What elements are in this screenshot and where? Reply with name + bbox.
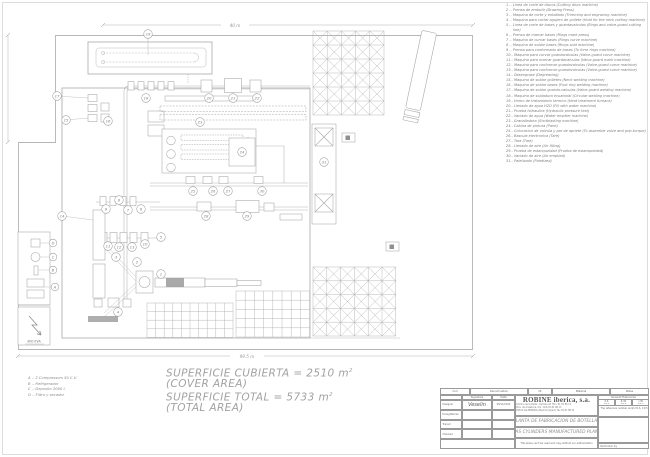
svg-text:1: 1: [160, 271, 162, 276]
legend-item: 11.- Maquina para marcar guardavalvulas …: [506, 58, 648, 62]
covered-area-en: (COVER AREA): [166, 379, 353, 390]
signature-role-label: Draughtsman: [440, 410, 462, 420]
station-marker: 31: [320, 158, 329, 167]
station-marker: 19: [144, 30, 153, 39]
station-marker: 6: [137, 205, 146, 214]
svg-text:12: 12: [117, 244, 122, 249]
svg-text:22: 22: [255, 95, 260, 100]
revision-header-cell: Material: [552, 388, 610, 395]
signature-value: [462, 410, 492, 420]
station-marker: 20: [205, 94, 214, 103]
legend-item: 18.- Maquina de soldadura ecuatorial (Ci…: [506, 94, 648, 98]
revision-header-cell: Notes: [610, 388, 649, 395]
legend-item: 6 .- Prensa de marcar bases (Rings mark …: [506, 33, 648, 37]
station-marker: 1: [157, 270, 166, 279]
signature-date: 28/11/2012: [492, 400, 515, 410]
legend-item: 7 .- Maquina de curvar bases (Rings curv…: [506, 38, 648, 42]
station-marker: 24: [238, 148, 247, 157]
svg-text:D: D: [52, 241, 55, 245]
storage-grid: [236, 291, 310, 337]
svg-text:26: 26: [211, 188, 216, 193]
equipment-letter-marker: C: [49, 253, 57, 261]
station-marker: 2: [133, 258, 142, 267]
total-area-es: SUPERFICIE TOTAL = 5733 m2: [166, 390, 353, 403]
total-area-en: (TOTAL AREA): [166, 403, 353, 414]
conveyor-lines: [96, 74, 310, 300]
area-summary: SUPERFICIE CUBIERTA = 2510 m2 (COVER ARE…: [166, 366, 353, 414]
svg-text:30: 30: [260, 188, 265, 193]
station-marker: 7: [124, 206, 133, 215]
legend-item: 16.- Maquina de soldar bases (Foot ring …: [506, 83, 648, 87]
signature-date: [492, 429, 515, 439]
station-marker: 26: [209, 187, 218, 196]
reminder-cell: Reminder by: [598, 443, 649, 449]
sign-empty-cell: [440, 439, 515, 449]
site-boundary: [19, 36, 473, 350]
covered-area-es: SUPERFICIE CUBIERTA = 2510 m2: [166, 366, 353, 379]
signature-value: [462, 429, 492, 439]
usage-note: This plane can't be used and copy withou…: [515, 438, 598, 449]
svg-text:18: 18: [144, 95, 149, 100]
signature-date: [492, 410, 515, 420]
legend-item: 2 .- Prensa de embutir (Drawing Press): [506, 8, 648, 12]
dimension-top-label: 40 m: [230, 23, 241, 28]
station-marker: 28: [202, 212, 211, 221]
station-marker: 17: [53, 92, 62, 101]
svg-text:A: A: [53, 285, 57, 289]
station-marker: 13: [128, 243, 137, 252]
drawing-title-en: GAS CYLINDERS MANUFACTURED PLANT: [515, 427, 598, 438]
compressor-room: [18, 232, 51, 345]
drawing-title-es: PLANTA DE FABRICACION DE BOTELLAS: [515, 416, 598, 427]
station-marker: 4: [114, 308, 123, 317]
legend-item: 19.- Horno de tratamiento termico (Heat …: [506, 99, 648, 103]
station-marker: 25: [189, 187, 198, 196]
svg-text:28: 28: [204, 213, 209, 218]
station-marker: 3: [112, 253, 121, 262]
legend-item: 8 .- Maquina de soldar bases (Rings sold…: [506, 43, 648, 47]
svg-text:24: 24: [240, 149, 245, 154]
svg-text:19: 19: [146, 31, 151, 36]
legend-item: 28.- Llenado de aire (Air filling): [506, 144, 648, 148]
station-marker: 5: [157, 233, 166, 242]
signature-value: [462, 420, 492, 430]
station-marker: 12: [115, 243, 124, 252]
tolerance-value-cell: ±0.5: [632, 403, 649, 406]
station-marker: 18: [142, 94, 151, 103]
equipment-letter-marker: B: [49, 266, 57, 274]
legend-item: 15.- Maquina de soldar golletes (Neck we…: [506, 78, 648, 82]
svg-text:16: 16: [106, 118, 111, 123]
machine-boxes: [88, 79, 274, 308]
transformer-label: 800 KVA: [27, 340, 40, 344]
signature-role-label: Traced: [440, 420, 462, 430]
title-block: Signature Date ROBINE iberica, s.a. Cami…: [440, 388, 649, 449]
signature-value: Veselin: [462, 400, 492, 410]
legend-item: 24.- Cabina de pintura (Paint): [506, 124, 648, 128]
legend-item: 1 .- Linea de corte de discos (Cutting d…: [506, 3, 648, 7]
svg-text:20: 20: [207, 95, 212, 100]
station-marker: 16: [104, 117, 113, 126]
legend-item: 29.- Prueba de estanqueidad (Prueba de e…: [506, 149, 648, 153]
legend-item: 9 .- Prensa para conformado de bases (To…: [506, 48, 648, 52]
station-marker: 23: [196, 118, 205, 127]
station-marker: 21: [229, 94, 238, 103]
station-marker: 22: [253, 94, 262, 103]
station-marker: 9: [102, 205, 111, 214]
signature-role-label: Designer: [440, 400, 462, 410]
legend-item: 4 .- Maquina para cortar agujero de goll…: [506, 18, 648, 22]
equipment-letter-marker: A: [51, 283, 59, 291]
legend-item: 26.- Bascula electronica (Tare): [506, 134, 648, 138]
truck-ramp: [403, 30, 437, 123]
legend-item: 3 .- Maquina de corte y entallado (Trimm…: [506, 13, 648, 17]
storage-rack-grids: [147, 31, 396, 337]
legend-item: 25.- Colocacion de valvula y par de apri…: [506, 129, 648, 133]
equipment-letter-marker: D: [49, 239, 57, 247]
legend-item: 21.- Prueba hidraulica (Hydraulic pressu…: [506, 109, 648, 113]
machine-legend: 1 .- Linea de corte de discos (Cutting d…: [506, 3, 648, 164]
svg-text:27: 27: [226, 188, 231, 193]
legend-item: 13.- Maquina para conformar guardavalvul…: [506, 68, 648, 72]
station-marker: 14: [58, 212, 67, 221]
svg-text:21: 21: [231, 95, 236, 100]
legend-item: 31.- Paletizado (Paletized): [506, 159, 648, 163]
storage-grid: [147, 303, 233, 337]
right-empty-cell: [598, 417, 649, 443]
station-marker: 29: [243, 212, 252, 221]
dimension-lines: [6, 23, 475, 358]
station-marker: 30: [258, 187, 267, 196]
legend-item: 27.- Tara (Tare): [506, 139, 648, 143]
legend-item: 22.- Vaciado de agua (Water emptier mach…: [506, 114, 648, 118]
station-marker: 8: [115, 196, 124, 205]
legend-item: 30.- Vaciado de aire (Air emptied): [506, 154, 648, 158]
svg-text:15: 15: [64, 117, 69, 122]
signature-role-label: Checked: [440, 429, 462, 439]
svg-text:13: 13: [130, 244, 135, 249]
revision-header-cell: Qt: [528, 388, 552, 395]
svg-text:31: 31: [322, 159, 327, 164]
utilities-legend: A .- 2 Compressors 50 C.V.B .- Refrigera…: [28, 376, 77, 398]
legend-item: 20.- Llenado de agua H2O (Fill with wate…: [506, 104, 648, 108]
dimension-bottom-label: 99.5 m: [240, 354, 255, 359]
signature-date: [492, 420, 515, 430]
svg-text:11: 11: [106, 243, 111, 248]
legend-item: 23.- Granalladora (Shotblasting machine): [506, 119, 648, 123]
svg-text:10: 10: [143, 241, 148, 246]
svg-text:25: 25: [191, 188, 196, 193]
station-marker: 10: [141, 240, 150, 249]
legend-item: 14.- Desengrase (Degreasing): [506, 73, 648, 77]
legend-item: 10.- Maquina para curvar guardavalvulas …: [506, 53, 648, 57]
legend-item: 17.- Maquina de soldar guarda-valvulas (…: [506, 88, 648, 92]
legend-item: 12.- Maquina para conformar guardavalvul…: [506, 63, 648, 67]
station-marker: 15: [62, 116, 71, 125]
equipment-letter-markers: DCBA: [49, 239, 59, 291]
utilities-legend-item: D .- Filtro y secador: [28, 393, 77, 399]
tolerance-value-cell: ±0.2: [615, 403, 632, 406]
revision-header-cell: Denomination: [470, 388, 528, 395]
revision-header-cell: Cod: [440, 388, 470, 395]
utilities-legend-item: A .- 2 Compressors 50 C.V.: [28, 376, 77, 382]
company-cell: ROBINE iberica, s.a. Camino de la Zarza …: [515, 395, 598, 416]
tolerances-note: The reference number and/or R.S. ±0.5: [598, 405, 649, 417]
svg-text:29: 29: [245, 213, 250, 218]
furnace-conveyor: [96, 39, 206, 68]
drawing-sheet: 800 KVA 40 m 99.5 m 12345678910111213141…: [0, 0, 650, 457]
station-marker: 11: [104, 242, 113, 251]
legend-item: 5 .- Linea de corte de bases y guardaval…: [506, 23, 648, 32]
company-address-3: 28342 VALDEMORO (Madrid) (Spain) Fax 91 …: [515, 410, 598, 413]
crosshatch-storage-grid: [313, 31, 384, 115]
tolerance-value-cell: ±0.1: [598, 403, 615, 406]
station-marker: 27: [224, 187, 233, 196]
crosshatch-storage-grid: [313, 267, 396, 336]
svg-text:17: 17: [55, 93, 60, 98]
svg-text:14: 14: [60, 213, 65, 218]
svg-text:23: 23: [198, 119, 203, 124]
